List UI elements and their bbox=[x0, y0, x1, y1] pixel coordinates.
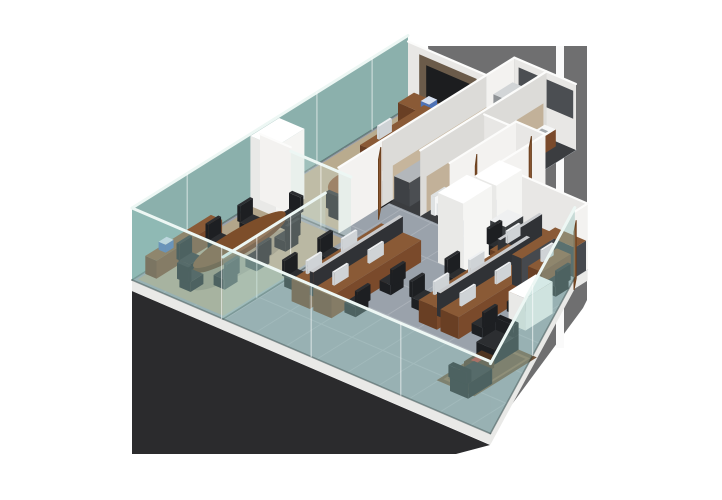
wall-conference-east bbox=[260, 134, 291, 213]
floorplan-svg bbox=[0, 0, 722, 500]
ceo-door bbox=[379, 147, 381, 220]
floorplan-render bbox=[0, 0, 722, 500]
